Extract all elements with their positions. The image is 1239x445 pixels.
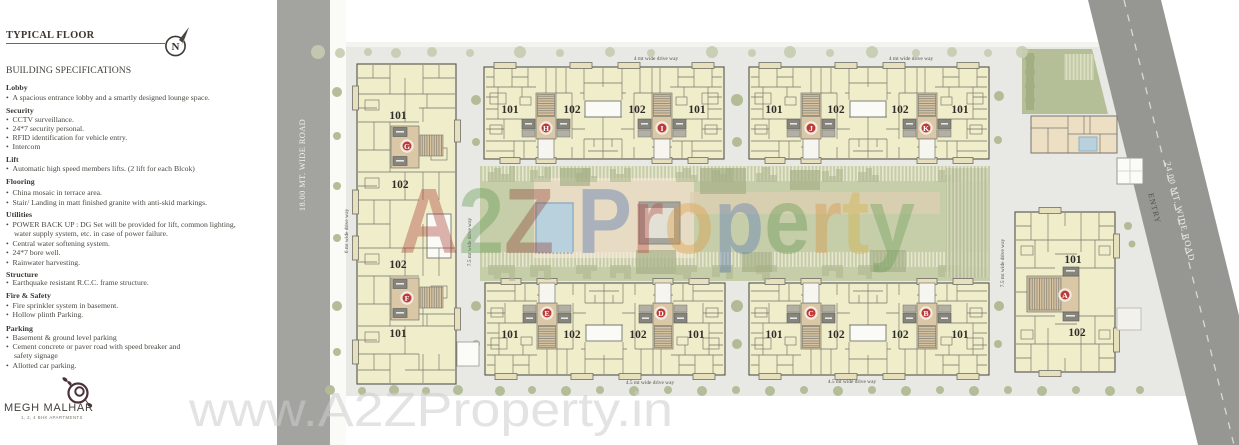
svg-text:6 mt wide drive way: 6 mt wide drive way <box>344 209 350 254</box>
svg-text:101: 101 <box>765 329 783 341</box>
svg-text:102: 102 <box>563 104 581 116</box>
svg-text:H: H <box>543 124 549 133</box>
svg-text:101: 101 <box>687 329 705 341</box>
svg-text:102: 102 <box>1068 327 1086 339</box>
svg-text:F: F <box>405 294 410 303</box>
svg-text:101: 101 <box>501 329 519 341</box>
svg-text:101: 101 <box>765 104 783 116</box>
svg-text:101: 101 <box>1064 254 1082 266</box>
svg-text:A2Z Property: A2Z Property <box>399 169 915 273</box>
svg-text:102: 102 <box>891 329 909 341</box>
svg-text:4.5 mt wide drive way: 4.5 mt wide drive way <box>828 379 877 385</box>
svg-text:102: 102 <box>629 329 647 341</box>
svg-text:4 mt wide drive way: 4 mt wide drive way <box>889 56 934 62</box>
svg-text:I: I <box>660 124 663 133</box>
svg-text:101: 101 <box>951 329 969 341</box>
svg-text:G: G <box>404 142 410 151</box>
svg-text:C: C <box>808 309 814 318</box>
svg-text:101: 101 <box>389 110 407 122</box>
svg-text:18.00 MT. WIDE ROAD: 18.00 MT. WIDE ROAD <box>298 119 307 211</box>
svg-text:101: 101 <box>389 328 407 340</box>
svg-text:www.A2ZProperty.in: www.A2ZProperty.in <box>188 384 673 437</box>
svg-text:4 mt wide drive way: 4 mt wide drive way <box>634 56 679 62</box>
svg-text:102: 102 <box>628 104 646 116</box>
svg-text:A: A <box>1062 291 1068 300</box>
svg-text:102: 102 <box>891 104 909 116</box>
svg-text:D: D <box>658 309 664 318</box>
svg-text:102: 102 <box>827 104 845 116</box>
svg-text:101: 101 <box>501 104 519 116</box>
svg-text:E: E <box>544 309 549 318</box>
svg-text:102: 102 <box>563 329 581 341</box>
svg-text:101: 101 <box>951 104 969 116</box>
svg-text:101: 101 <box>688 104 706 116</box>
svg-text:J: J <box>809 124 813 133</box>
svg-text:B: B <box>923 309 928 318</box>
svg-text:K: K <box>923 124 929 133</box>
svg-text:7.5 mt wide drive way: 7.5 mt wide drive way <box>1000 239 1006 288</box>
svg-text:102: 102 <box>827 329 845 341</box>
